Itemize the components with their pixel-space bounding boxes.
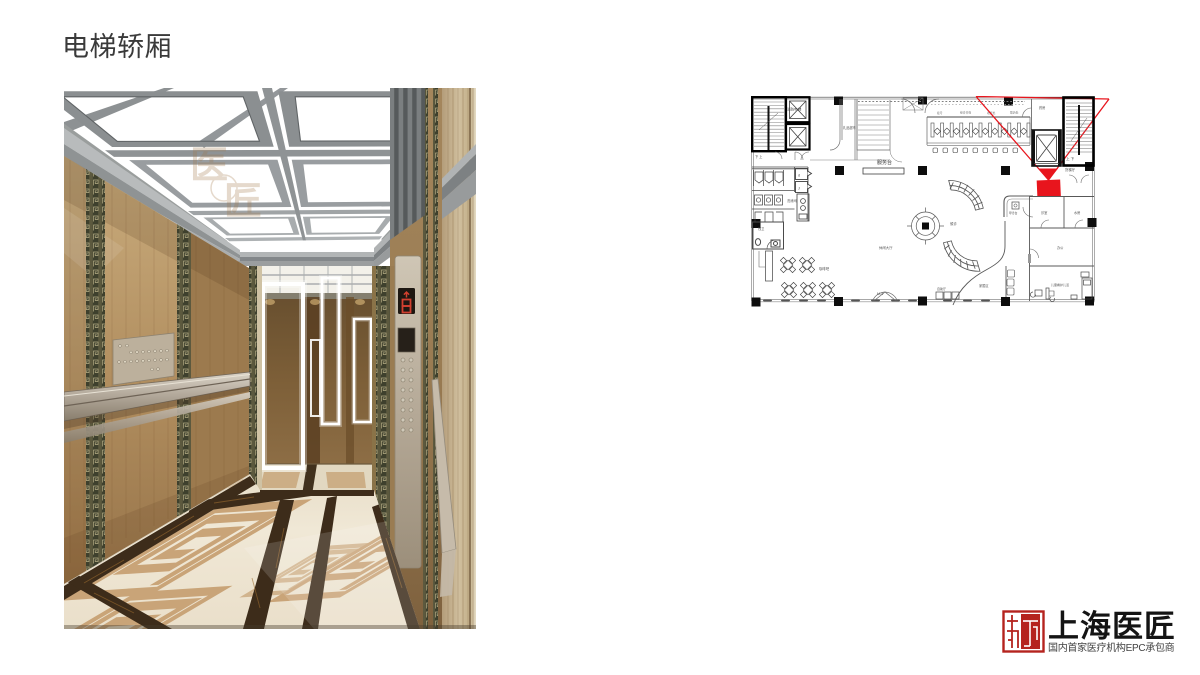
svg-text:挂号: 挂号 <box>937 111 943 115</box>
svg-text:消防电梯: 消防电梯 <box>787 107 802 112</box>
svg-text:诊室: 诊室 <box>1041 210 1047 215</box>
svg-text:取药处: 取药处 <box>1010 111 1019 115</box>
svg-text:洗消间: 洗消间 <box>787 198 797 203</box>
svg-text:M-5: M-5 <box>877 292 883 296</box>
svg-text:导诊台: 导诊台 <box>1009 211 1018 215</box>
svg-text:礼品超市: 礼品超市 <box>843 125 857 130</box>
svg-text:咖啡吧: 咖啡吧 <box>819 266 830 271</box>
svg-text:货梯厅: 货梯厅 <box>1065 167 1076 172</box>
svg-text:休闲大厅: 休闲大厅 <box>879 245 893 250</box>
svg-text:下 上: 下 上 <box>755 154 763 159</box>
svg-text:综合咨询: 综合咨询 <box>960 111 971 115</box>
svg-text:候诊: 候诊 <box>950 221 957 226</box>
svg-text:残卫: 残卫 <box>758 226 765 231</box>
svg-text:家属区: 家属区 <box>979 283 989 288</box>
svg-text:J: J <box>798 187 800 191</box>
svg-text:上 下: 上 下 <box>1066 156 1075 161</box>
svg-text:水房: 水房 <box>1074 210 1080 215</box>
svg-text:服务台: 服务台 <box>877 159 892 166</box>
svg-text:医: 医 <box>190 145 228 187</box>
svg-text:匠: 匠 <box>224 181 262 223</box>
svg-text:办公: 办公 <box>1057 245 1064 250</box>
svg-text:药房: 药房 <box>1039 105 1045 110</box>
svg-text:儿童看护儿活: 儿童看护儿活 <box>1051 282 1069 287</box>
svg-text:自助厅: 自助厅 <box>937 286 946 291</box>
svg-text:d: d <box>798 174 800 178</box>
